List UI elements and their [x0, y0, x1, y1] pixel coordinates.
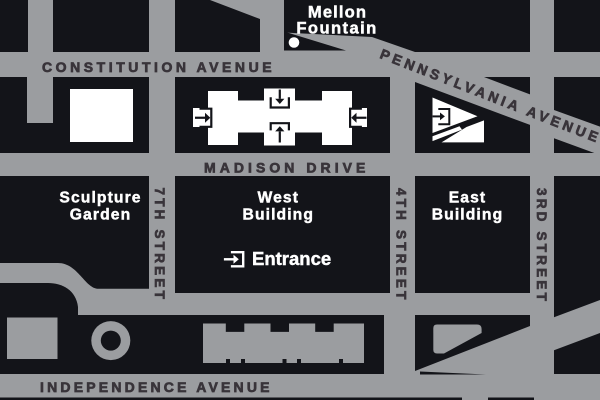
svg-text:7TH STREET: 7TH STREET — [152, 188, 167, 303]
svg-text:CONSTITUTION AVENUE: CONSTITUTION AVENUE — [42, 59, 275, 75]
svg-text:Garden: Garden — [70, 207, 132, 224]
svg-text:Entrance: Entrance — [252, 248, 331, 269]
svg-text:Fountain: Fountain — [296, 18, 377, 37]
svg-text:Sculpture: Sculpture — [59, 190, 141, 207]
svg-text:INDEPENDENCE AVENUE: INDEPENDENCE AVENUE — [40, 379, 273, 395]
svg-text:Building: Building — [432, 207, 504, 224]
svg-text:MADISON DRIVE: MADISON DRIVE — [204, 160, 369, 176]
svg-text:4TH STREET: 4TH STREET — [394, 188, 409, 303]
svg-text:Building: Building — [243, 207, 315, 224]
svg-text:3RD STREET: 3RD STREET — [534, 188, 549, 304]
svg-text:East: East — [449, 190, 487, 207]
svg-text:West: West — [257, 190, 299, 207]
